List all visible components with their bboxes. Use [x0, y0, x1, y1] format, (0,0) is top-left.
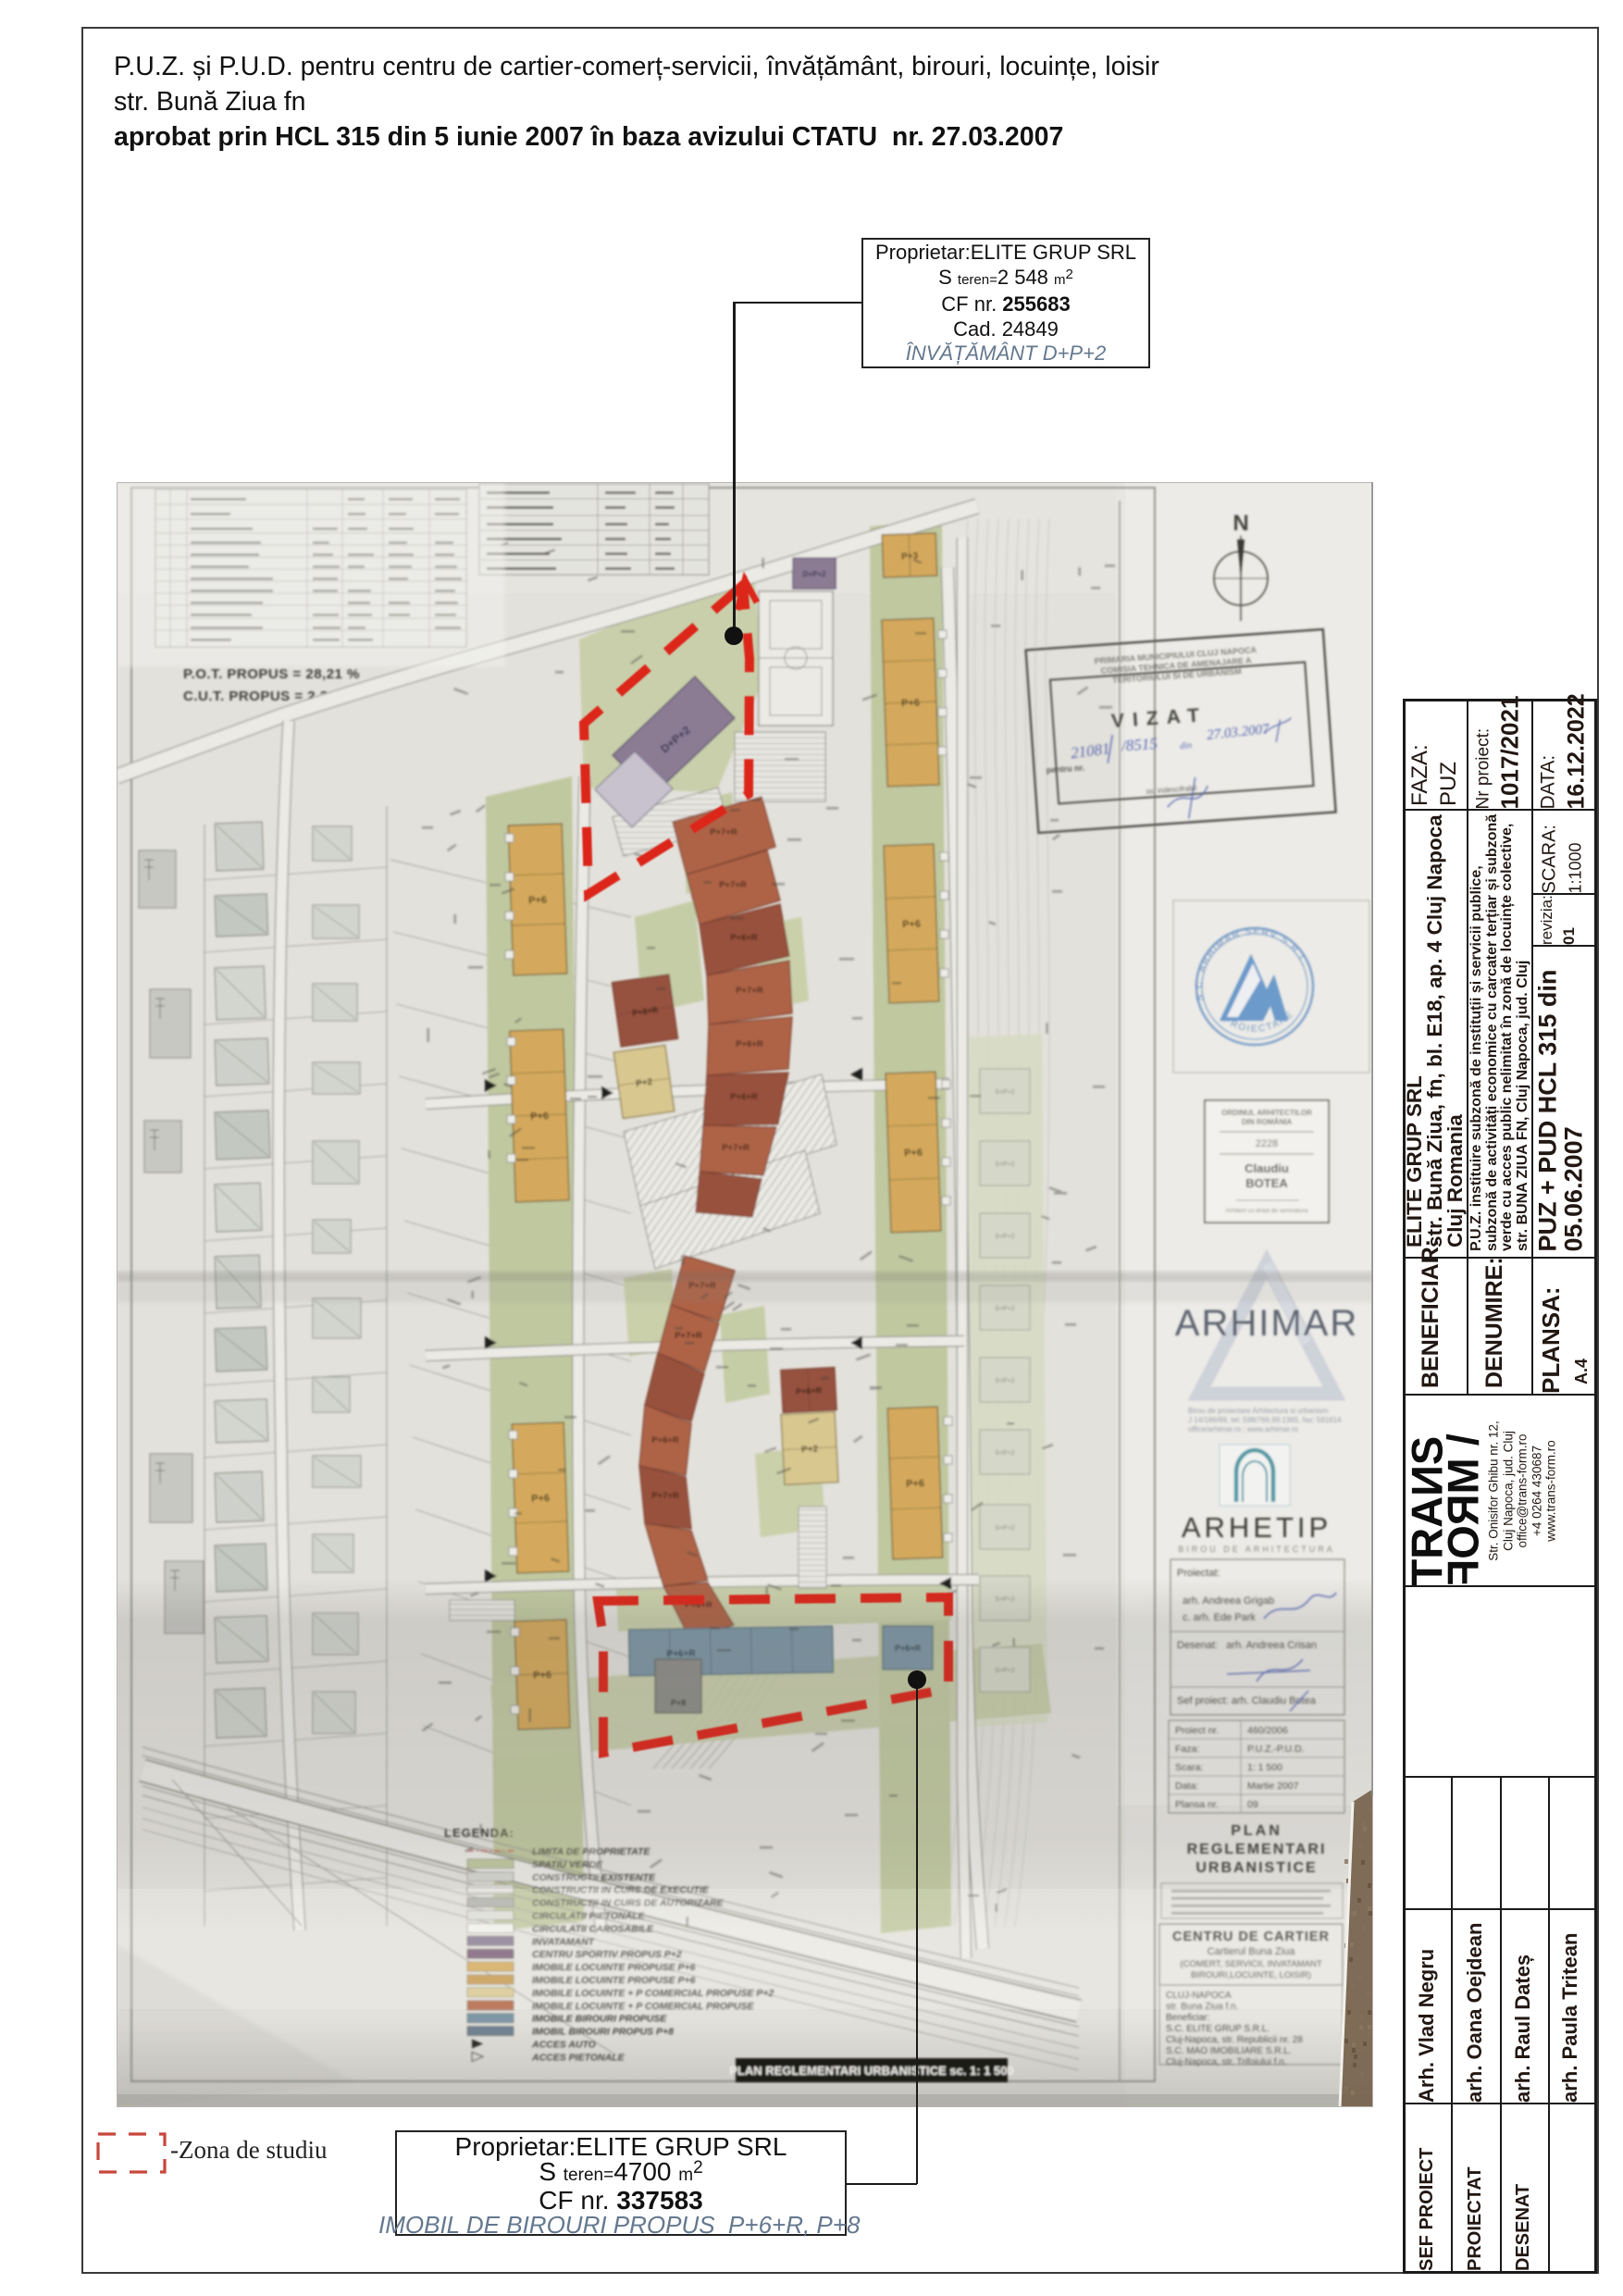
svg-text:BIROU DE ARHITECTURA: BIROU DE ARHITECTURA — [1178, 1545, 1335, 1554]
svg-text:Birou de proiectare Arhitectur: Birou de proiectare Arhitectura si urban… — [1188, 1407, 1329, 1415]
svg-text:ARHETIP: ARHETIP — [1182, 1511, 1332, 1544]
svg-text:N: N — [1233, 511, 1248, 536]
svg-text:ORDINUL ARHITECTILOR: ORDINUL ARHITECTILOR — [1221, 1109, 1312, 1117]
svg-text:/8515: /8515 — [1120, 735, 1158, 755]
svg-text:BOTEA: BOTEA — [1245, 1176, 1288, 1190]
svg-text:2228: 2228 — [1256, 1138, 1278, 1149]
svg-text:Claudiu: Claudiu — [1245, 1161, 1289, 1175]
svg-text:Arhitect cu drept de semnatura: Arhitect cu drept de semnatura — [1226, 1208, 1308, 1214]
svg-text:din: din — [1180, 740, 1193, 751]
svg-text:office/arhimar.ro ; www.arhima: office/arhimar.ro ; www.arhimar.ro — [1188, 1425, 1299, 1433]
svg-text:Proiectat:: Proiectat: — [1177, 1568, 1220, 1579]
svg-text:ARHIMAR: ARHIMAR — [1175, 1303, 1358, 1344]
svg-text:J 14/186/99, tel: 598/766.99.1: J 14/186/99, tel: 598/766.99.1365, fax: … — [1188, 1416, 1342, 1424]
svg-text:PLAN REGLEMENTARI URBANISTICE: PLAN REGLEMENTARI URBANISTICE sc. 1: 1 5… — [729, 2064, 1013, 2078]
svg-text:DIN ROMÂNIA: DIN ROMÂNIA — [1242, 1118, 1292, 1126]
